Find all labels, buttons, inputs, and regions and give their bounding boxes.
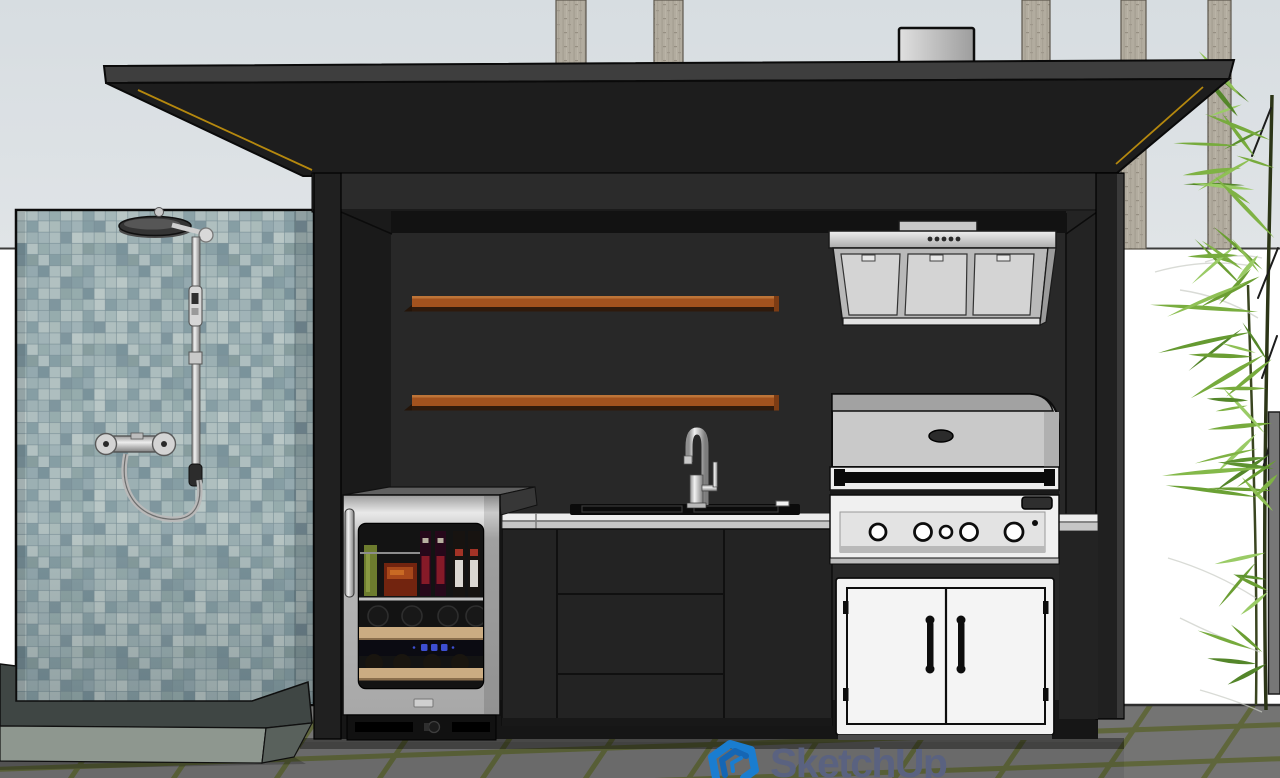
svg-text:SketchUp: SketchUp — [770, 740, 947, 778]
